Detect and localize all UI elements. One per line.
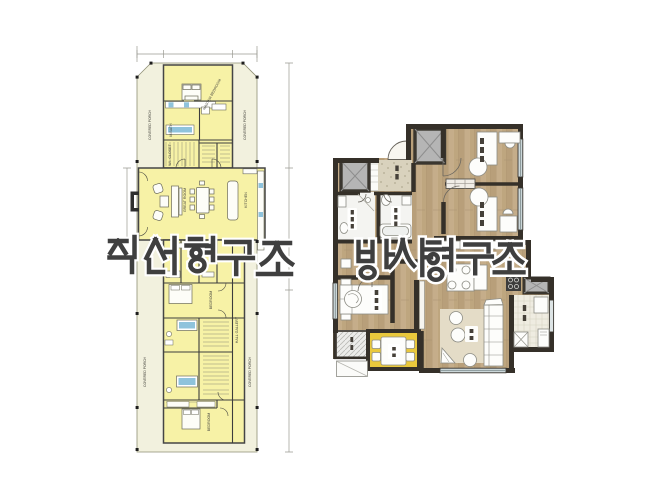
svg-text:GREAT ROOM: GREAT ROOM (183, 188, 187, 212)
svg-text:COVERED PORCH: COVERED PORCH (143, 356, 147, 387)
svg-text:KITCHEN: KITCHEN (244, 192, 248, 208)
svg-text:HALL GALLERY: HALL GALLERY (235, 316, 239, 343)
svg-text:BEDROOM: BEDROOM (207, 413, 211, 432)
svg-text:COVERED PORCH: COVERED PORCH (248, 356, 252, 387)
svg-text:COVERED PORCH: COVERED PORCH (243, 109, 247, 140)
svg-text:M.BATH: M.BATH (169, 123, 173, 137)
svg-text:W.I. CLOSET: W.I. CLOSET (168, 143, 172, 165)
svg-text:BEDROOM: BEDROOM (209, 291, 213, 310)
svg-text:COVERED PORCH: COVERED PORCH (148, 109, 152, 140)
